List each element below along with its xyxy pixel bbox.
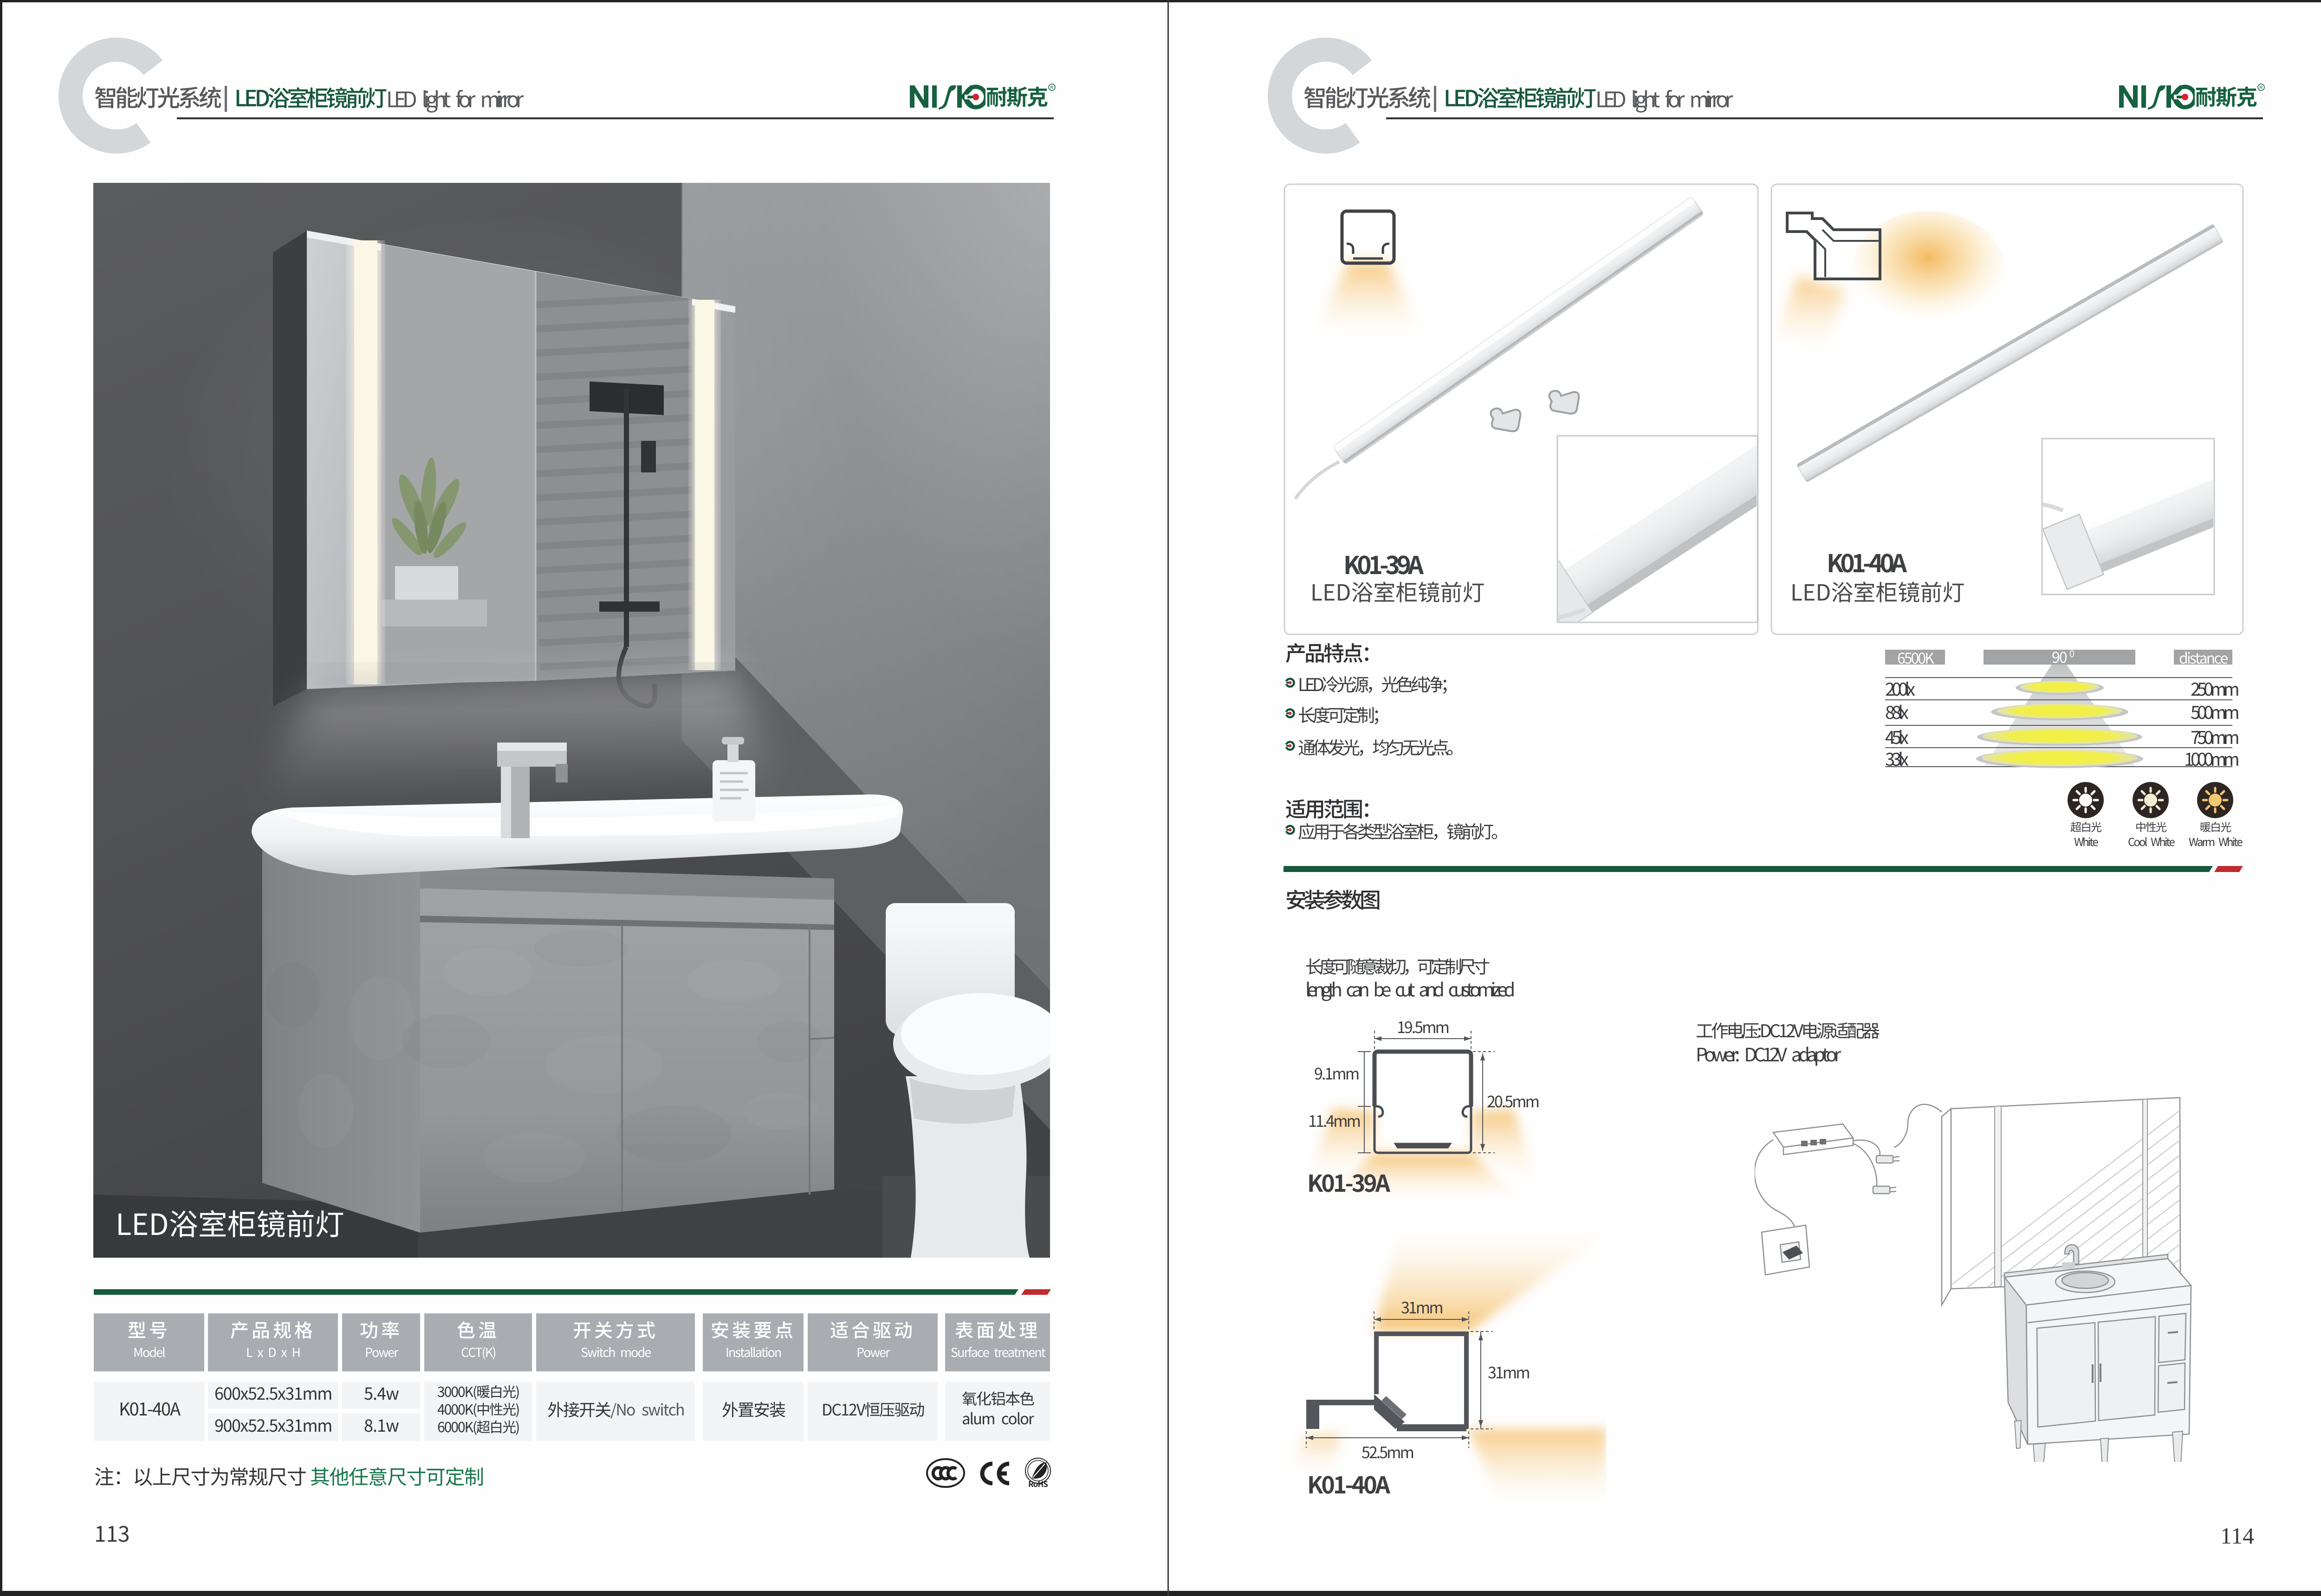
svg-text:R: R [1050,85,1053,90]
svg-text:R: R [2259,85,2263,90]
